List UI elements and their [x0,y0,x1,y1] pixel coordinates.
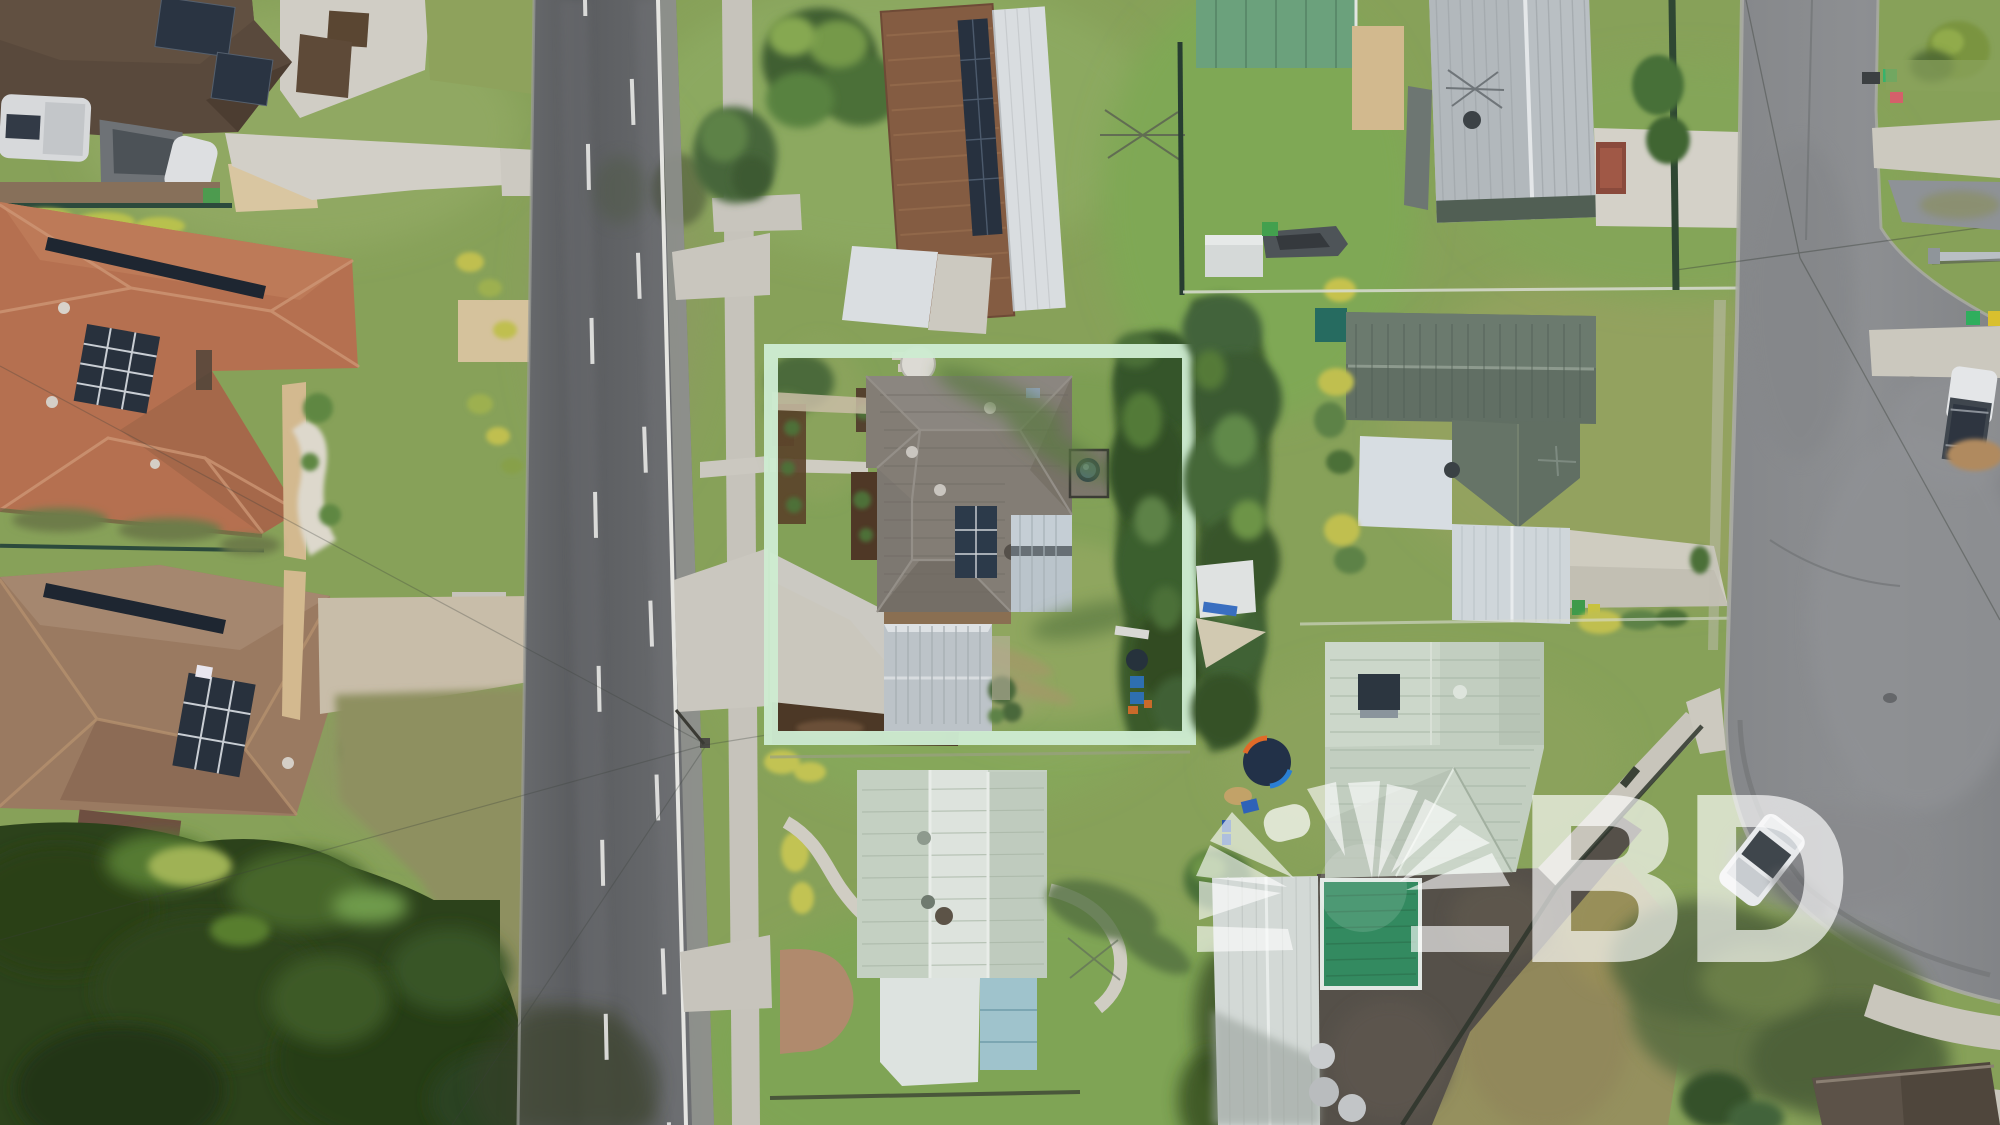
svg-text:BD: BD [1520,747,1850,1009]
